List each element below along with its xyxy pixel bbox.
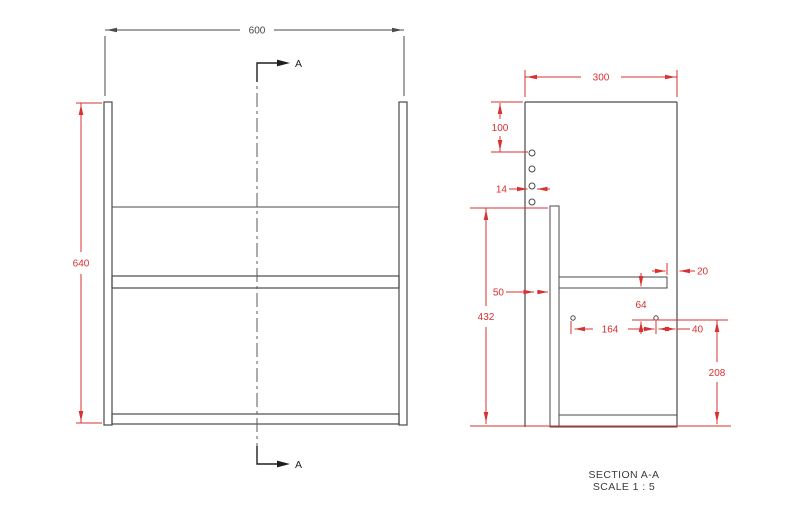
section-label-bottom: A <box>295 459 302 471</box>
shelf-pin-hole <box>529 199 535 205</box>
dowel-hole <box>571 316 575 320</box>
dim-back-height-value: 432 <box>478 312 495 323</box>
dim-shelf-to-holes-value: 64 <box>635 300 647 311</box>
dim-top-offset-value: 100 <box>492 123 509 134</box>
bottom-shelf <box>112 414 399 424</box>
cad-drawing-sheet: A A 600 640 <box>0 0 800 513</box>
bottom-shelf-section <box>559 415 677 427</box>
dim-height-value: 640 <box>73 259 90 270</box>
middle-shelf-section <box>559 277 667 288</box>
dim-shelf-gap-20: 20 <box>652 263 709 278</box>
shelf-pin-hole <box>529 150 535 156</box>
dim-top-offset-100: 100 <box>491 102 528 152</box>
dim-depth-value: 300 <box>593 73 610 84</box>
middle-shelf <box>112 276 399 288</box>
dim-height-640: 640 <box>73 103 102 423</box>
dim-holes-to-bottom-208: 208 <box>632 320 728 424</box>
shelf-pin-hole <box>529 183 535 189</box>
dim-hole-spacing-value: 164 <box>602 325 619 336</box>
shelf-pin-holes <box>529 150 535 205</box>
section-arrowhead-icon <box>277 461 290 468</box>
section-scale: SCALE 1 : 5 <box>593 481 655 493</box>
section-arrow-top: A <box>257 58 302 82</box>
dim-hole-spacing-164: 164 <box>571 321 656 336</box>
dim-hole-to-edge-value: 40 <box>692 325 704 336</box>
dim-holes-to-bottom-value: 208 <box>709 368 726 379</box>
section-arrowhead-icon <box>277 60 290 67</box>
dim-shelf-gap-value: 20 <box>697 267 709 278</box>
dim-shelf-to-holes-64: 64 <box>635 273 647 334</box>
dim-depth-300: 300 <box>525 70 677 97</box>
dim-width-600: 600 <box>105 26 404 97</box>
front-view: A A 600 640 <box>73 26 407 472</box>
section-label-top: A <box>295 58 302 70</box>
dim-back-offset-50: 50 <box>493 288 548 299</box>
right-side-panel <box>399 102 407 425</box>
dim-back-height-432: 432 <box>470 208 548 424</box>
dim-hole-14: 14 <box>496 185 550 196</box>
back-panel-section <box>550 206 559 427</box>
left-side-panel <box>104 102 112 425</box>
section-title: SECTION A-A <box>589 469 660 481</box>
dim-width-value: 600 <box>249 26 266 37</box>
dim-back-offset-value: 50 <box>493 288 505 299</box>
view-caption: SECTION A-A SCALE 1 : 5 <box>589 469 660 493</box>
dim-hole-to-edge-40: 40 <box>659 325 704 336</box>
shelf-pin-hole <box>529 166 535 172</box>
section-arrow-bottom: A <box>257 446 302 471</box>
dim-hole-value: 14 <box>496 185 508 196</box>
section-view: 300 100 14 50 <box>470 70 731 427</box>
